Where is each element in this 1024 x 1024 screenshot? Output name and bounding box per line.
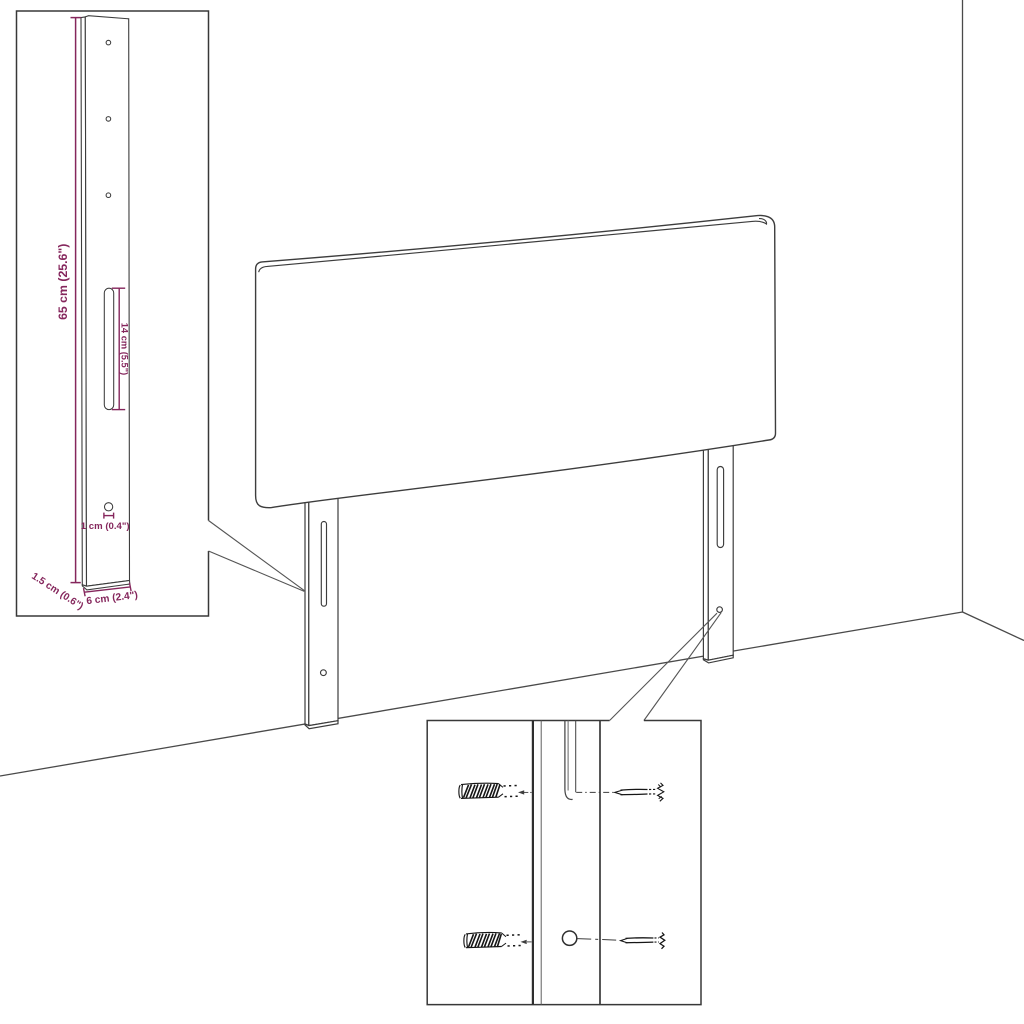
svg-text:14 cm (5.5"): 14 cm (5.5") bbox=[119, 323, 129, 375]
svg-text:1 cm (0.4"): 1 cm (0.4") bbox=[81, 521, 130, 532]
svg-text:65 cm (25.6"): 65 cm (25.6") bbox=[56, 244, 70, 320]
